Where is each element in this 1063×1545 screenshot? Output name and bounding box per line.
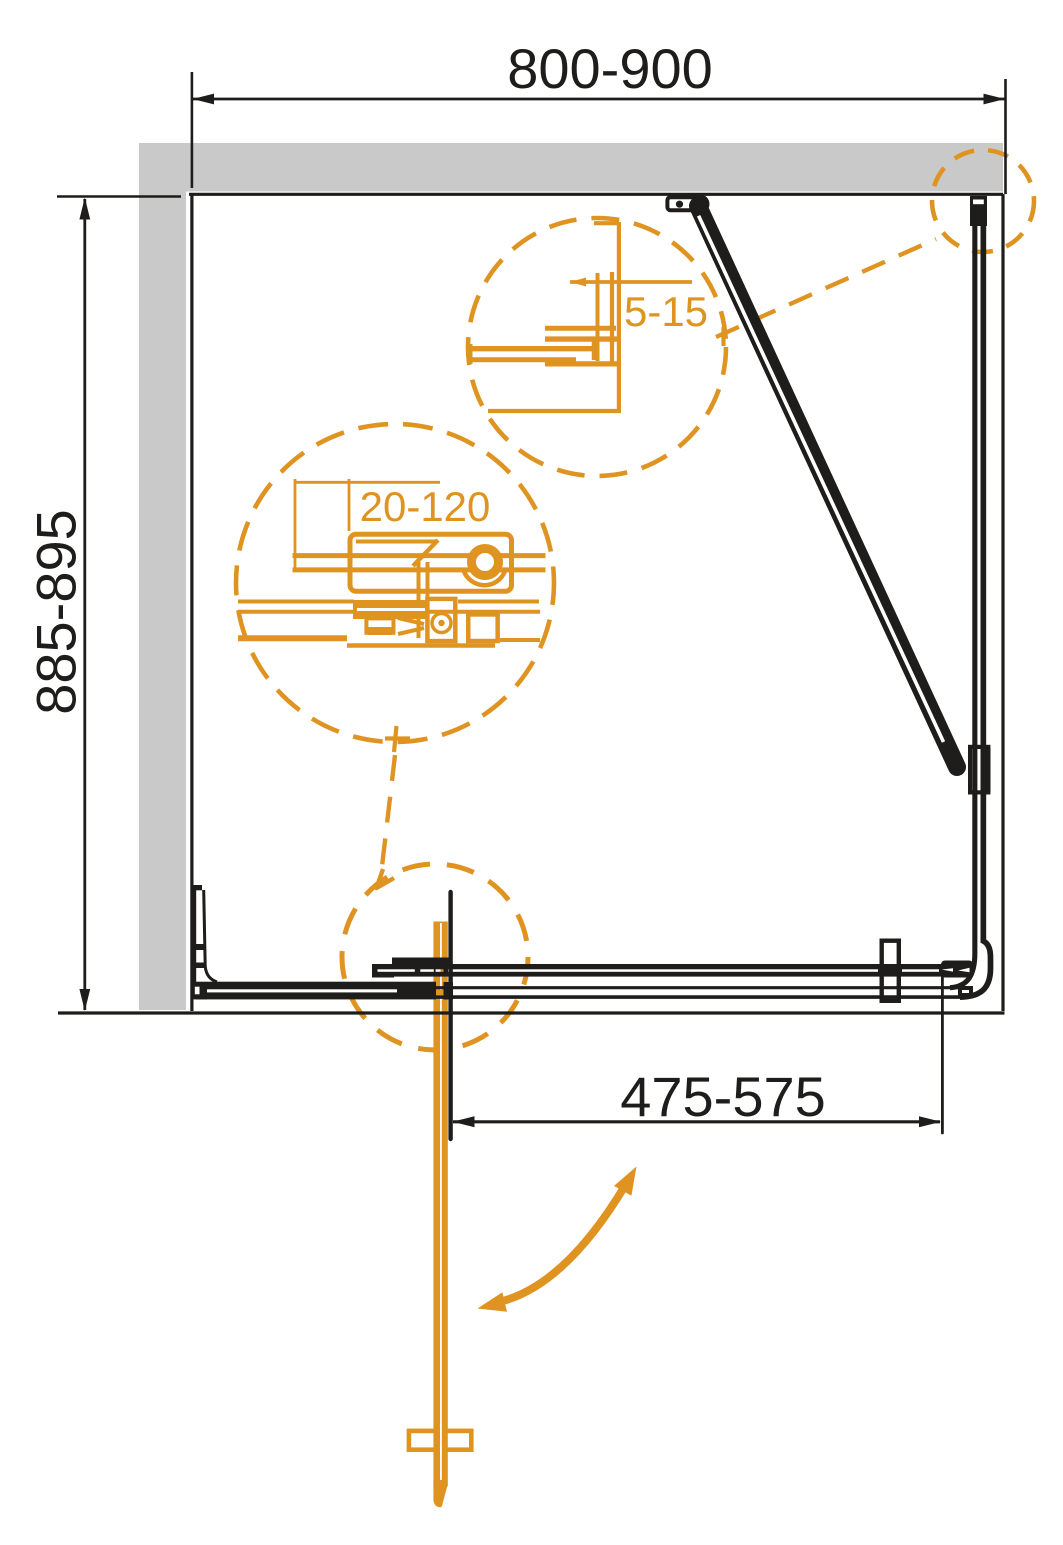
- svg-text:800-900: 800-900: [507, 37, 713, 100]
- svg-text:885-895: 885-895: [25, 509, 88, 715]
- svg-text:20-120: 20-120: [360, 483, 491, 530]
- svg-text:475-575: 475-575: [620, 1065, 826, 1128]
- svg-text:5-15: 5-15: [624, 288, 708, 335]
